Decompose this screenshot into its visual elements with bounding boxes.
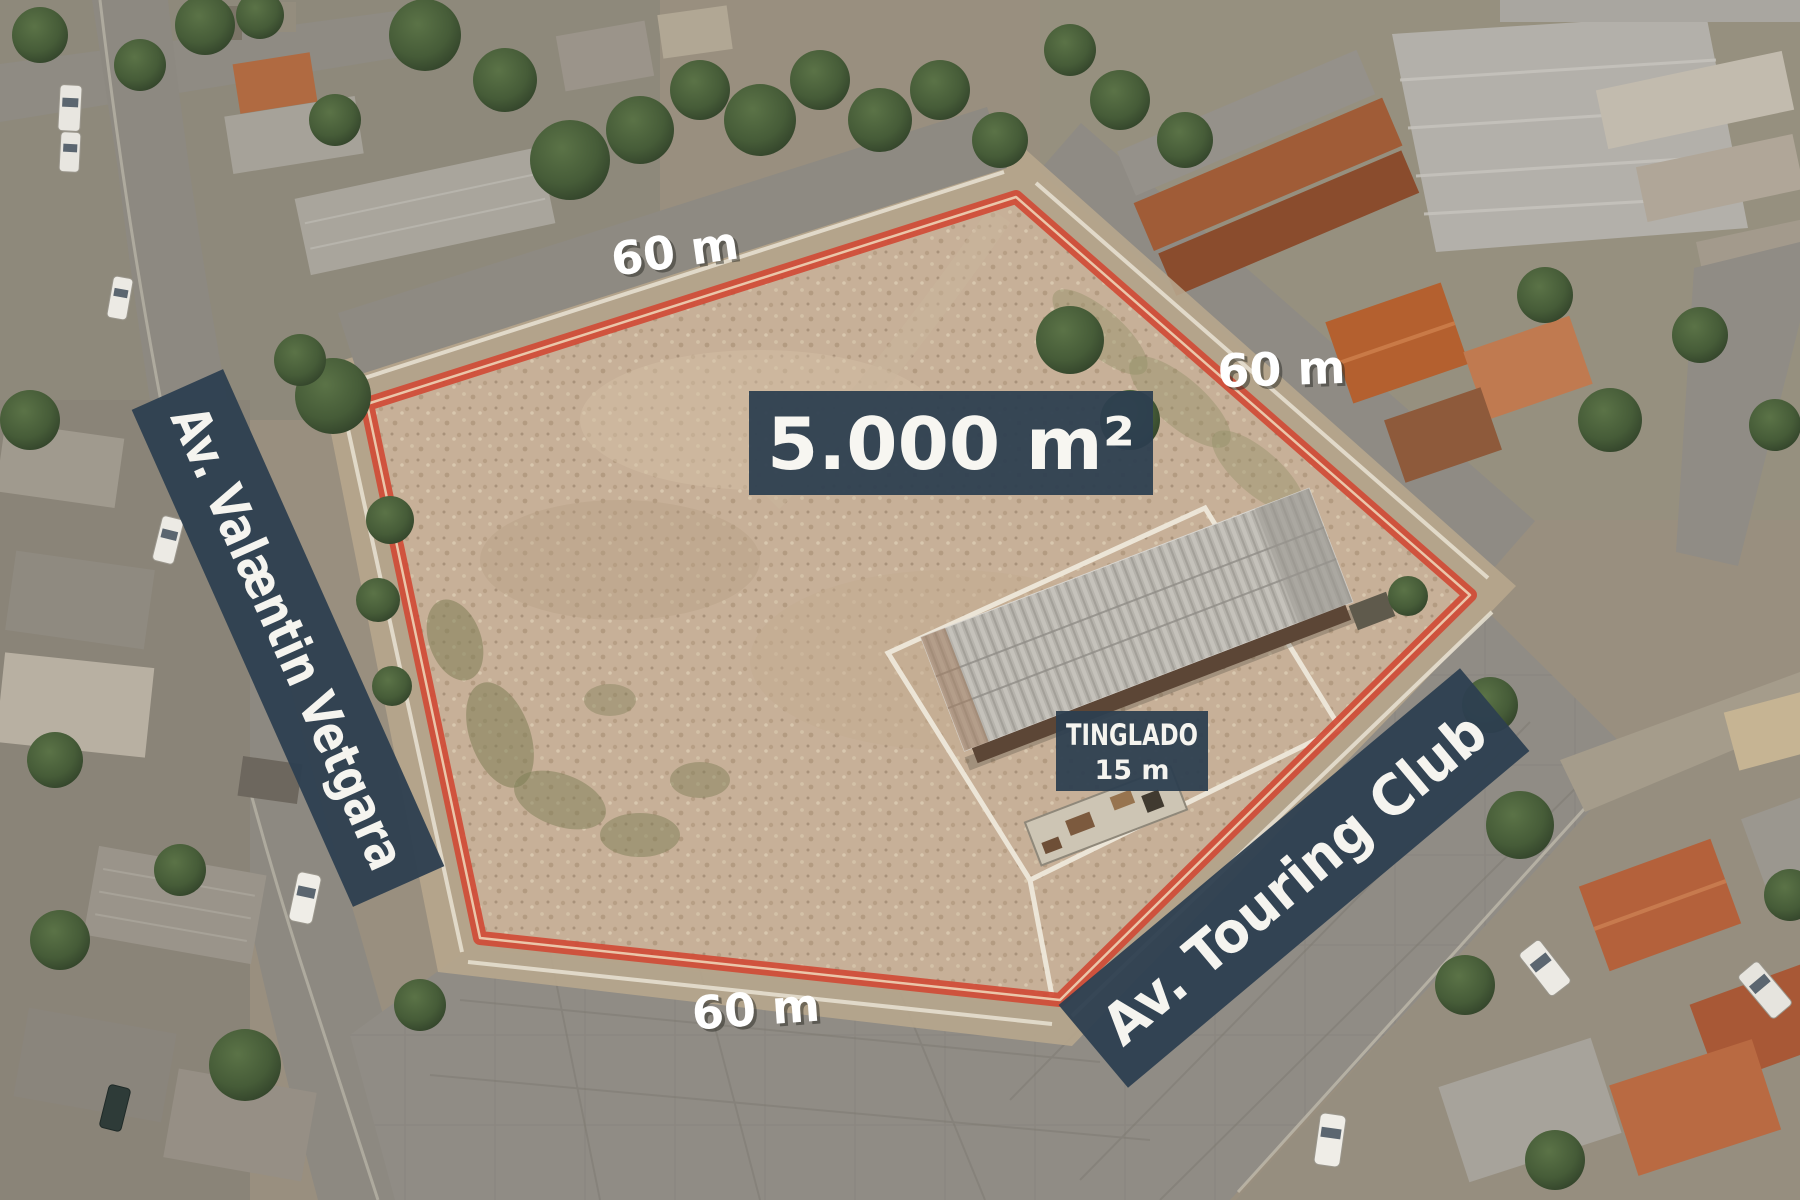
tree [790, 50, 850, 110]
tree [1157, 112, 1213, 168]
tree [30, 910, 90, 970]
tree [366, 496, 414, 544]
area-badge: 5.000 m² [749, 391, 1153, 495]
tree [1517, 267, 1573, 323]
shed-badge: TINGLADO 15 m [1056, 711, 1208, 791]
tree [1525, 1130, 1585, 1190]
tree [724, 84, 796, 156]
tree [389, 0, 461, 71]
tree [1435, 955, 1495, 1015]
tree [972, 112, 1028, 168]
measurement-label: 60 m [690, 978, 821, 1041]
tree [356, 578, 400, 622]
aerial-photo: Av. Valæntin Vetgara Av. Touring Club 5.… [0, 0, 1800, 1200]
tree [1044, 24, 1096, 76]
building-roof [1500, 0, 1800, 22]
tree [473, 48, 537, 112]
tree [274, 334, 326, 386]
tree [154, 844, 206, 896]
tree [1578, 388, 1642, 452]
tree [12, 7, 68, 63]
car [59, 132, 81, 173]
measurement-bottom: 60 m 60 m [690, 977, 825, 1043]
tree [1090, 70, 1150, 130]
tree [848, 88, 912, 152]
car [58, 84, 82, 131]
tree [114, 39, 166, 91]
shed-title-label: TINGLADO [1066, 718, 1198, 752]
tree [1388, 576, 1428, 616]
measurement-right: 60 m 60 m [1217, 340, 1350, 402]
measurement-label: 60 m [1217, 340, 1347, 398]
tree [309, 94, 361, 146]
shed-length-label: 15 m [1094, 755, 1169, 786]
tree [910, 60, 970, 120]
tree [1749, 399, 1800, 451]
tree [372, 666, 412, 706]
tree [670, 60, 730, 120]
tree [394, 979, 446, 1031]
tree [1672, 307, 1728, 363]
tree [606, 96, 674, 164]
building-roof [0, 652, 154, 757]
area-label: 5.000 m² [767, 402, 1135, 486]
tree [209, 1029, 281, 1101]
tree [0, 390, 60, 450]
tree [1486, 791, 1554, 859]
factory-roof [1392, 14, 1748, 252]
tree [1036, 306, 1104, 374]
tree [27, 732, 83, 788]
aerial-photo-canvas: Av. Valæntin Vetgara Av. Touring Club 5.… [0, 0, 1800, 1200]
tree [530, 120, 610, 200]
